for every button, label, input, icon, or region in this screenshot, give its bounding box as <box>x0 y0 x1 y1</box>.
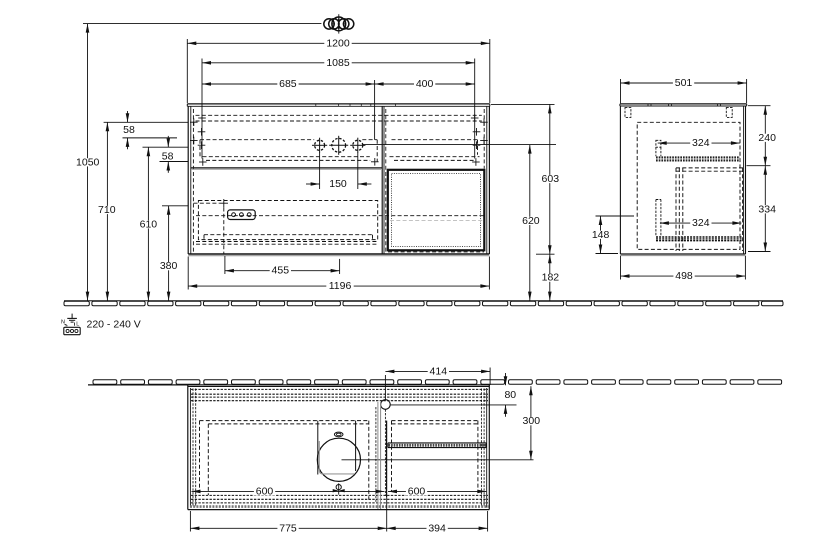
svg-text:380: 380 <box>160 260 178 272</box>
svg-text:600: 600 <box>408 485 426 497</box>
svg-text:300: 300 <box>523 415 541 427</box>
svg-text:501: 501 <box>675 77 693 89</box>
svg-text:220 - 240 V: 220 - 240 V <box>87 318 141 330</box>
svg-text:394: 394 <box>428 522 446 534</box>
svg-text:610: 610 <box>140 218 158 230</box>
svg-text:498: 498 <box>675 270 693 282</box>
svg-text:80: 80 <box>504 389 516 401</box>
svg-text:240: 240 <box>758 132 776 144</box>
svg-text:324: 324 <box>692 137 710 149</box>
svg-text:58: 58 <box>162 151 174 163</box>
svg-text:1196: 1196 <box>329 280 352 292</box>
svg-text:150: 150 <box>329 178 347 190</box>
svg-text:334: 334 <box>758 203 776 215</box>
svg-text:685: 685 <box>279 78 297 90</box>
svg-text:1085: 1085 <box>326 57 350 69</box>
svg-text:775: 775 <box>279 522 297 534</box>
svg-text:L: L <box>76 322 79 328</box>
svg-text:1200: 1200 <box>326 37 350 49</box>
svg-text:620: 620 <box>522 215 540 227</box>
svg-text:455: 455 <box>272 265 290 277</box>
svg-text:324: 324 <box>692 217 710 229</box>
svg-text:710: 710 <box>98 204 116 216</box>
svg-text:414: 414 <box>430 365 448 377</box>
svg-text:603: 603 <box>542 173 560 185</box>
svg-text:400: 400 <box>416 78 434 90</box>
svg-text:600: 600 <box>256 485 274 497</box>
svg-text:58: 58 <box>123 124 135 136</box>
svg-text:182: 182 <box>542 272 560 284</box>
svg-text:148: 148 <box>592 229 610 241</box>
svg-text:1050: 1050 <box>76 156 100 168</box>
svg-text:N: N <box>61 319 65 325</box>
